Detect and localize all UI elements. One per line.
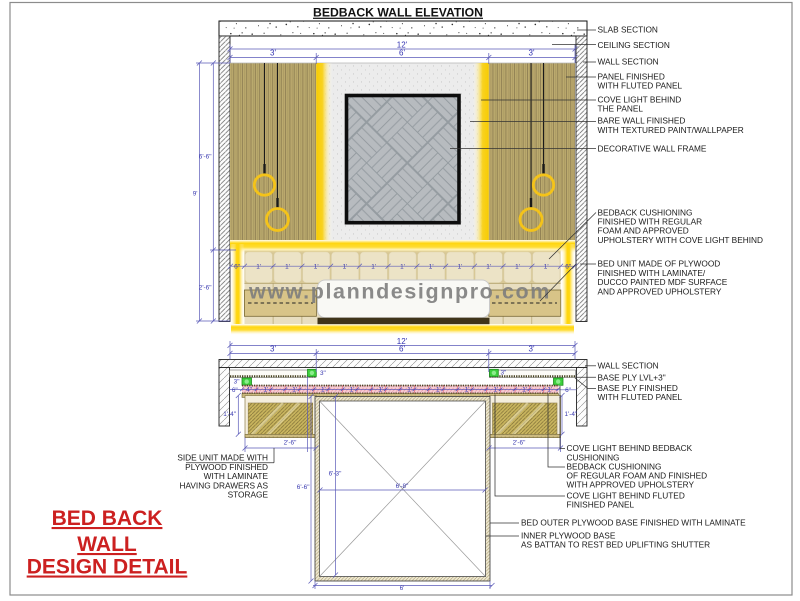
svg-text:COVE LIGHT BEHIND BEDBACK: COVE LIGHT BEHIND BEDBACK (567, 443, 693, 453)
svg-text:WITH APPROVED UPHOLSTERY: WITH APPROVED UPHOLSTERY (567, 480, 695, 490)
svg-text:CEILING SECTION: CEILING SECTION (598, 40, 670, 50)
svg-text:3': 3' (270, 49, 276, 58)
svg-text:1': 1' (256, 263, 261, 270)
svg-text:6": 6" (565, 387, 571, 394)
svg-text:1'-4": 1'-4" (223, 411, 236, 418)
svg-text:BED OUTER PLYWOOD BASE FINISHE: BED OUTER PLYWOOD BASE FINISHED WITH LAM… (521, 518, 746, 528)
svg-text:WALL SECTION: WALL SECTION (598, 57, 659, 67)
svg-text:1': 1' (429, 263, 434, 270)
svg-text:STORAGE: STORAGE (228, 490, 269, 500)
svg-text:2'-6": 2'-6" (513, 439, 526, 446)
svg-text:1': 1' (314, 263, 319, 270)
svg-text:1': 1' (292, 387, 297, 394)
svg-text:DUCCO PAINTED MDF SURFACE: DUCCO PAINTED MDF SURFACE (598, 277, 728, 287)
svg-text:1': 1' (486, 263, 491, 270)
svg-text:3": 3" (501, 370, 507, 377)
svg-text:1': 1' (343, 263, 348, 270)
svg-text:WITH FLUTED PANEL: WITH FLUTED PANEL (598, 392, 683, 402)
svg-text:1': 1' (465, 387, 470, 394)
svg-text:3': 3' (270, 344, 276, 353)
svg-text:6": 6" (565, 263, 571, 270)
svg-text:6": 6" (234, 263, 240, 270)
svg-text:AND APPROVED UPHOLSTERY: AND APPROVED UPHOLSTERY (598, 287, 722, 297)
svg-text:DESIGN DETAIL: DESIGN DETAIL (27, 556, 188, 579)
svg-text:1'-4": 1'-4" (565, 411, 578, 418)
svg-text:1': 1' (400, 263, 405, 270)
svg-text:UPHOLSTERY WITH COVE LIGHT BEH: UPHOLSTERY WITH COVE LIGHT BEHIND (598, 235, 764, 245)
svg-text:BARE WALL FINISHED: BARE WALL FINISHED (598, 116, 686, 126)
svg-text:WITH LAMINATE: WITH LAMINATE (204, 471, 269, 481)
svg-text:1': 1' (436, 387, 441, 394)
svg-text:1': 1' (458, 263, 463, 270)
svg-text:BED UNIT MADE OF PLYWOOD: BED UNIT MADE OF PLYWOOD (598, 259, 721, 269)
svg-text:6'-6": 6'-6" (199, 154, 212, 161)
svg-text:2'-6": 2'-6" (284, 439, 297, 446)
svg-text:9': 9' (193, 191, 198, 198)
svg-text:1': 1' (264, 387, 269, 394)
svg-text:WITH TEXTURED PAINT/WALLPAPER: WITH TEXTURED PAINT/WALLPAPER (598, 125, 744, 135)
svg-text:WITH FLUTED PANEL: WITH FLUTED PANEL (598, 81, 683, 91)
svg-text:1': 1' (547, 387, 552, 394)
svg-text:1': 1' (321, 387, 326, 394)
svg-text:BEDBACK WALL ELEVATION: BEDBACK WALL ELEVATION (313, 6, 483, 20)
svg-text:4": 4" (246, 387, 252, 394)
svg-text:6'-8": 6'-8" (396, 483, 409, 490)
svg-text:FINISHED PANEL: FINISHED PANEL (567, 500, 635, 510)
svg-text:1': 1' (350, 387, 355, 394)
svg-text:1': 1' (494, 387, 499, 394)
svg-text:WALL: WALL (77, 533, 137, 556)
svg-text:www.planndesignpro.com: www.planndesignpro.com (248, 280, 551, 304)
svg-text:6': 6' (399, 344, 405, 353)
svg-text:1': 1' (522, 387, 527, 394)
svg-text:6": 6" (232, 387, 238, 394)
svg-text:6': 6' (399, 49, 405, 58)
svg-text:6': 6' (400, 585, 405, 592)
svg-text:AS BATTAN TO REST BED UPLIFTIN: AS BATTAN TO REST BED UPLIFTING SHUTTER (521, 540, 710, 550)
svg-text:1': 1' (515, 263, 520, 270)
svg-text:1': 1' (371, 263, 376, 270)
svg-text:FOAM AND APPROVED: FOAM AND APPROVED (598, 226, 689, 236)
svg-text:BED BACK: BED BACK (52, 507, 163, 530)
svg-text:6'-3": 6'-3" (329, 471, 342, 478)
svg-text:WALL SECTION: WALL SECTION (598, 360, 659, 370)
svg-text:3": 3" (320, 370, 326, 377)
svg-text:THE PANEL: THE PANEL (598, 104, 644, 114)
svg-text:1': 1' (544, 263, 549, 270)
svg-text:SIDE UNIT MADE WITH: SIDE UNIT MADE WITH (177, 453, 268, 463)
svg-text:3': 3' (529, 344, 535, 353)
svg-text:2'-6": 2'-6" (199, 285, 212, 292)
svg-text:1': 1' (379, 387, 384, 394)
svg-text:6'-6": 6'-6" (297, 484, 310, 491)
svg-text:3': 3' (529, 49, 535, 58)
svg-text:DECORATIVE WALL FRAME: DECORATIVE WALL FRAME (598, 144, 707, 154)
svg-text:BASE PLY LVL+3": BASE PLY LVL+3" (598, 372, 666, 382)
svg-text:1': 1' (407, 387, 412, 394)
svg-text:1': 1' (285, 263, 290, 270)
svg-text:3": 3" (234, 379, 240, 386)
svg-text:SLAB SECTION: SLAB SECTION (598, 25, 658, 35)
